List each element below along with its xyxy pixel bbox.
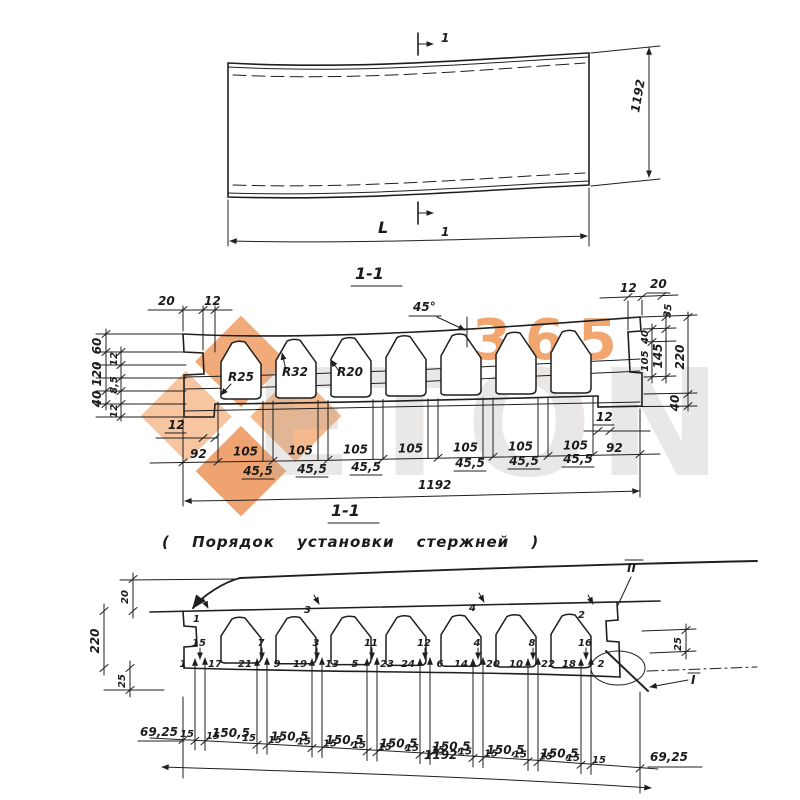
section-title: 1-1 — [355, 264, 384, 283]
bottom-rod-mark: I — [691, 673, 696, 687]
section-right-key — [598, 317, 642, 407]
dim-label-220: 220 — [673, 344, 687, 369]
placement-caption: ( Порядок установки стержней ) — [162, 533, 539, 551]
dim-row-total — [162, 767, 651, 788]
dim-label-12: 12 — [109, 404, 120, 418]
dim-label-40-bottom: 40 — [668, 395, 682, 413]
dim-label-145: 145 — [651, 343, 665, 368]
rod-placement-view: 1-1 ( Порядок установки стержней ) II I — [88, 501, 757, 793]
bar-number-1: 1 — [193, 614, 200, 625]
mark-leader — [618, 577, 631, 605]
dim-label-12: 12 — [596, 410, 613, 424]
hollow-core — [551, 330, 591, 393]
hollow-core — [496, 332, 536, 394]
bar-number: 20 — [486, 659, 500, 670]
bar-arrow — [314, 595, 319, 604]
section-bottom-face — [215, 396, 598, 404]
radius-label-r25: R25 — [228, 370, 254, 384]
bar-number-upper: 3 — [313, 638, 320, 649]
bar-number: 6 — [437, 659, 444, 670]
placement-right-key — [606, 603, 620, 677]
dim-label-25-right: 25 — [673, 637, 684, 651]
bar-number-2: 2 — [578, 610, 585, 621]
bar-number-upper: 12 — [417, 638, 431, 649]
blueprint-page: ETON 365 1 1 1192 — [0, 0, 800, 800]
section-bottom-dims: 10510510510510510510545,545,545,545,545,… — [179, 396, 644, 479]
dim-label-20: 20 — [158, 294, 175, 308]
mark-leader — [650, 680, 688, 687]
dim-label-total-1192: 1192 — [424, 748, 457, 762]
radius-label-r32: R32 — [282, 365, 308, 379]
bar-number: 24 — [401, 659, 415, 670]
dim-label-92-left: 92 — [190, 447, 207, 461]
dim-label-105: 105 — [398, 441, 423, 455]
dim-label-45-5: 45,5 — [350, 460, 381, 474]
hollow-core — [221, 617, 261, 663]
dim-label-12: 12 — [204, 294, 221, 308]
dim-tick — [638, 294, 646, 301]
dim-label-15: 15 — [180, 729, 194, 740]
plan-view: 1 1 1192 L — [228, 31, 660, 246]
dim-label-105: 105 — [288, 443, 313, 457]
dim-label-150-5: 150,5 — [487, 743, 525, 757]
dim-label-69-25-right: 69,25 — [650, 750, 688, 764]
dim-label-150-5: 150,5 — [541, 746, 579, 760]
radius-label-r20: R20 — [337, 365, 363, 379]
ext-line — [120, 579, 238, 580]
bar-number-upper: 8 — [529, 638, 536, 649]
dim-row-total — [185, 491, 639, 501]
dim-label-40: 40 — [90, 391, 104, 409]
bar-number-4: 4 — [468, 603, 476, 614]
dim-label-45-5: 45,5 — [242, 464, 273, 478]
placement-bottom-dims: 15151515151515151515151515151515150,5150… — [100, 576, 690, 772]
section-mark-label-bottom: 1 — [441, 225, 449, 239]
bar-number-upper: 4 — [473, 638, 481, 649]
dim-label-150-5: 150,5 — [380, 736, 418, 750]
bar-number-upper: 15 — [192, 638, 206, 649]
bar-number-upper: 11 — [364, 638, 378, 649]
dim-label-20: 20 — [120, 590, 131, 604]
dim-label-40-top: 40 — [640, 330, 651, 345]
bar-number: 14 — [454, 659, 468, 670]
ext-line — [591, 179, 660, 186]
bar-number: 19 — [293, 659, 307, 670]
dim-line — [600, 295, 678, 298]
ext-line — [644, 376, 676, 377]
dim-label-60: 60 — [90, 338, 104, 355]
section-mark-label-top: 1 — [441, 31, 449, 45]
hollow-core — [276, 617, 316, 664]
bar-number: 17 — [208, 659, 222, 670]
dim-label-12: 12 — [168, 418, 185, 432]
bar-number-upper: 7 — [258, 638, 265, 649]
dim-label-105: 105 — [233, 444, 258, 458]
bar-number: 1 — [180, 659, 187, 670]
bar-number: 2 — [598, 659, 605, 670]
bar-number: 21 — [238, 659, 252, 670]
bar-number-3: 3 — [304, 605, 311, 616]
dim-label-120: 120 — [90, 361, 104, 386]
bar-number-upper: 16 — [578, 638, 592, 649]
dim-label-105: 105 — [343, 442, 368, 456]
bar-number: 9 — [274, 659, 281, 670]
bar-number: 22 — [541, 659, 555, 670]
dim-label-1192: 1192 — [628, 78, 648, 113]
bar-number: 23 — [380, 659, 394, 670]
ext-line — [591, 46, 660, 53]
dim-label-45-5: 45,5 — [296, 462, 327, 476]
ext-line — [644, 393, 697, 394]
top-rod-line — [240, 561, 757, 578]
technical-drawing: 1 1 1192 L 1-1 — [0, 0, 800, 800]
dim-label-25: 25 — [117, 674, 128, 688]
section-1-1: 1-1 45° R25 R32 R20 — [90, 264, 697, 506]
dim-line-L — [230, 236, 587, 242]
ext-line — [643, 328, 676, 329]
chamfer-leader — [437, 317, 465, 330]
bar-number: 10 — [509, 659, 523, 670]
bar-number: 13 — [325, 659, 339, 670]
dim-label-8-5: 8,5 — [109, 376, 120, 394]
bar-arrow — [479, 593, 484, 602]
hollow-cores — [221, 330, 591, 399]
chamfer-label: 45° — [412, 300, 436, 314]
dim-label-150-5: 150,5 — [326, 733, 364, 747]
ext-line — [642, 629, 696, 631]
dim-label-20: 20 — [650, 277, 667, 291]
placement-title: 1-1 — [331, 501, 360, 520]
dim-label-92-right: 92 — [606, 441, 623, 455]
bar-number: 5 — [352, 659, 359, 670]
dim-label-150-5: 150,5 — [212, 726, 250, 740]
dim-label-45-5: 45,5 — [508, 454, 539, 468]
hollow-core — [386, 336, 426, 396]
dim-label-69-25-left: 69,25 — [140, 725, 178, 739]
top-rod-hook — [193, 578, 240, 608]
bar-number: 18 — [562, 659, 576, 670]
dim-label-105: 105 — [563, 438, 588, 452]
dim-label-220: 220 — [88, 628, 102, 653]
dim-label-105: 105 — [508, 439, 533, 453]
dim-label-12: 12 — [620, 281, 637, 295]
top-rod-mark: II — [627, 561, 636, 575]
dim-label-15: 15 — [592, 755, 606, 766]
bar-arrow — [203, 598, 208, 608]
dim-label-105: 105 — [640, 351, 651, 372]
bottom-rod-axis — [647, 667, 757, 671]
dim-label-total-1192: 1192 — [418, 478, 451, 492]
dim-label-12: 12 — [109, 352, 120, 366]
dim-label-150-5: 150,5 — [271, 730, 309, 744]
section-left-key — [183, 334, 215, 417]
dim-label-105: 105 — [453, 440, 478, 454]
dim-label-L: L — [378, 218, 388, 237]
dim-label-45-5: 45,5 — [454, 456, 485, 470]
dim-label-45-5: 45,5 — [562, 452, 593, 466]
hollow-core — [441, 334, 481, 395]
